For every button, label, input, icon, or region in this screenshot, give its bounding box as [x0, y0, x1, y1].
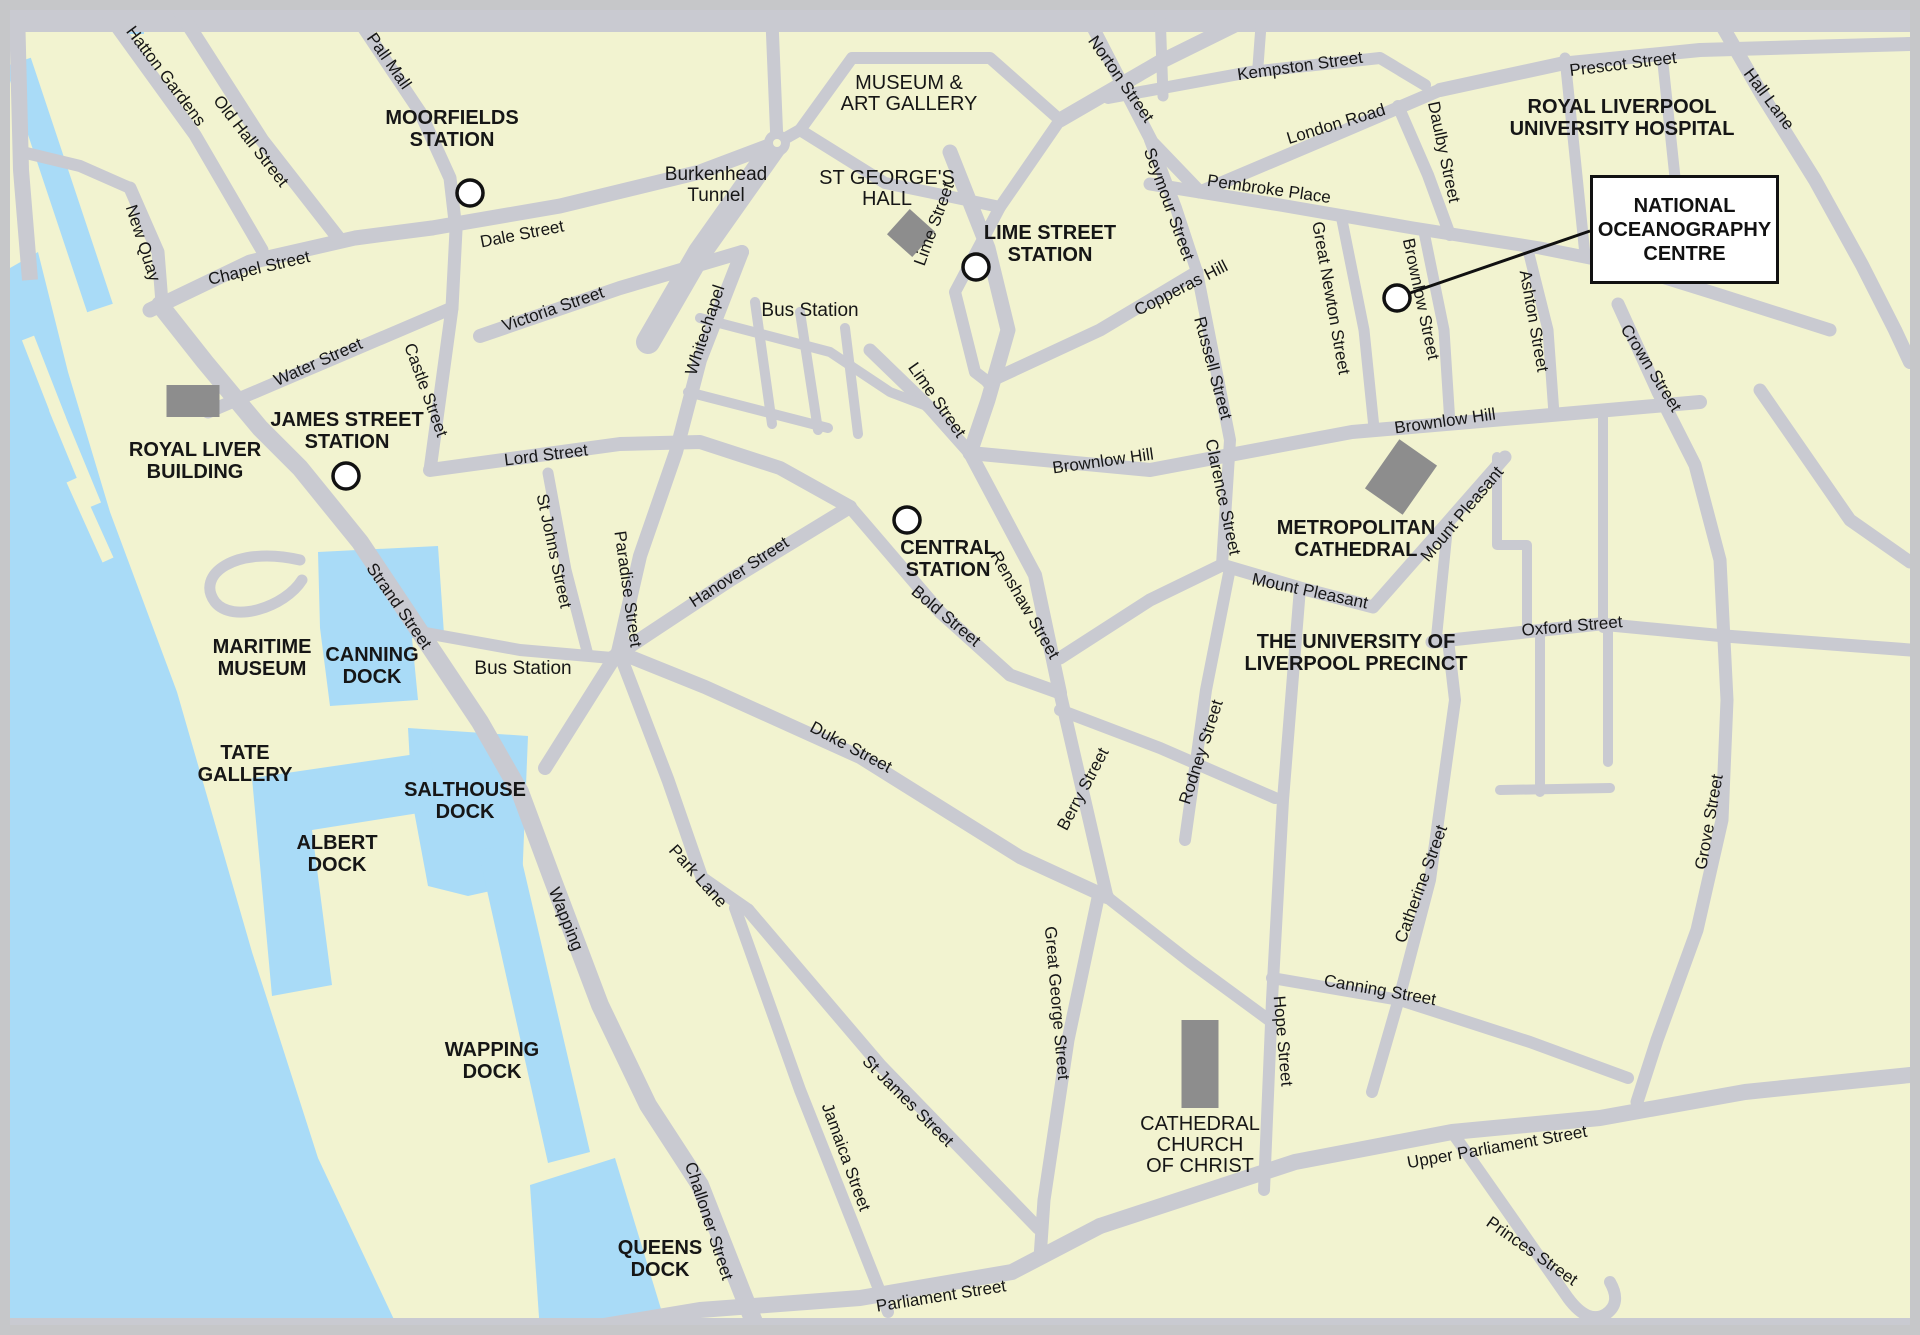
road-uni-road-5 [1500, 788, 1610, 790]
bus-station-lower-label: Bus Station [474, 658, 571, 679]
lime-street-station-marker [963, 254, 989, 280]
noc-callout-line: NATIONAL [1634, 194, 1736, 218]
cathedral-church-label: CATHEDRALCHURCHOF CHRIST [1140, 1113, 1260, 1177]
maritime-museum-label: MARITIMEMUSEUM [213, 636, 312, 680]
noc-callout-line: OCEANOGRAPHY [1598, 218, 1771, 242]
royal-liver-building [167, 385, 220, 417]
royal-liver-building-label: ROYAL LIVERBUILDING [129, 439, 262, 483]
liverpool-map: Pall MallHatton GardensOld Hall StreetCh… [0, 0, 1920, 1335]
james-street-station-marker [333, 463, 359, 489]
university-precinct-label: THE UNIVERSITY OFLIVERPOOL PRECINCT [1245, 631, 1468, 675]
moorfields-station-marker [457, 180, 483, 206]
central-station-label: CENTRALSTATION [900, 537, 996, 581]
cathedral-church-building [1182, 1020, 1219, 1108]
central-station-marker [894, 507, 920, 533]
museum-art-gallery-label: MUSEUM &ART GALLERY [841, 72, 978, 115]
noc-callout: NATIONAL OCEANOGRAPHY CENTRE [1590, 175, 1779, 284]
road-roundabout-north-road [772, 22, 777, 143]
road-top-link-2 [1258, 12, 1262, 66]
noc-marker [1384, 285, 1410, 311]
albert-dock-label: ALBERTDOCK [296, 832, 377, 876]
noc-callout-line: CENTRE [1643, 242, 1725, 266]
bus-station-upper-label: Bus Station [761, 300, 858, 321]
royal-liverpool-hospital-label: ROYAL LIVERPOOLUNIVERSITY HOSPITAL [1510, 96, 1735, 140]
metropolitan-cathedral-label: METROPOLITANCATHEDRAL [1277, 517, 1436, 561]
roundabout-centre [773, 139, 781, 147]
